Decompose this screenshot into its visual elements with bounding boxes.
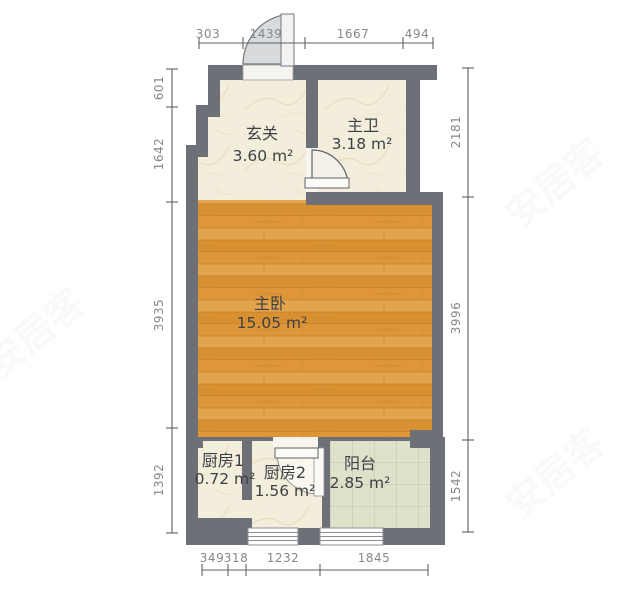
door-threshold xyxy=(243,65,293,80)
wall-segment xyxy=(330,437,410,441)
room-zhuwo-name: 主卧 xyxy=(254,294,286,313)
wall-segment xyxy=(432,192,443,448)
dim-label-left-0: 601 xyxy=(152,76,166,100)
room-xuanguan-name: 玄关 xyxy=(246,124,278,143)
dimension-left xyxy=(166,69,178,533)
room-zhuwei-area: 3.18 m² xyxy=(332,135,393,153)
floorplan-image: 安居客 安居客 安居客 安居客 xyxy=(0,0,631,600)
wall-segment xyxy=(252,437,273,441)
dim-label-top-1: 1439 xyxy=(250,27,283,41)
dim-label-bottom-1: 318 xyxy=(224,551,248,565)
dimension-right xyxy=(462,68,474,532)
room-chufang2-name: 厨房2 xyxy=(264,463,306,482)
room-yangtai-name: 阳台 xyxy=(344,454,376,473)
dim-label-left-1: 1642 xyxy=(152,138,166,171)
room-zhuwei-name: 主卫 xyxy=(347,116,379,135)
window-balcony xyxy=(320,528,383,545)
wall-segment xyxy=(406,65,420,192)
wall-segment xyxy=(186,528,248,545)
room-chufang1-area: 0.72 m² xyxy=(195,470,256,488)
entry-door xyxy=(243,14,294,80)
wall-segment xyxy=(318,437,330,448)
dim-label-bottom-3: 1845 xyxy=(358,551,391,565)
dim-label-bottom-0: 349 xyxy=(200,551,224,565)
room-chufang2-area: 1.56 m² xyxy=(255,482,316,500)
room-zhuwo-area: 15.05 m² xyxy=(237,314,308,332)
wall-segment xyxy=(306,65,318,148)
dim-label-left-3: 1392 xyxy=(152,464,166,497)
door-leaf xyxy=(275,448,318,458)
wall-segment xyxy=(242,437,252,448)
dim-label-top-0: 303 xyxy=(196,27,220,41)
dim-label-left-2: 3935 xyxy=(152,299,166,332)
wall-segment xyxy=(410,430,443,448)
room-xuanguan-area: 3.60 m² xyxy=(233,147,294,165)
door-leaf xyxy=(305,178,349,188)
wall-segment xyxy=(298,528,320,545)
wall-segment xyxy=(383,528,445,545)
dim-label-right-0: 2181 xyxy=(449,116,463,149)
dim-label-right-2: 1542 xyxy=(449,470,463,503)
door-threshold xyxy=(273,437,318,448)
dim-label-top-2: 1667 xyxy=(337,27,370,41)
dimension-bottom xyxy=(202,564,428,576)
window-kitchen xyxy=(248,528,298,545)
wall-segment xyxy=(186,437,203,448)
room-yangtai-area: 2.85 m² xyxy=(330,474,391,492)
floor-plan-svg: 安居客 安居客 安居客 安居客 xyxy=(0,0,631,600)
room-zhuwo-floor xyxy=(198,200,432,437)
dimension-top xyxy=(199,37,433,49)
watermark: 安居客 xyxy=(0,280,93,387)
watermark: 安居客 xyxy=(498,420,614,527)
watermark: 安居客 xyxy=(498,130,614,237)
dim-label-bottom-2: 1232 xyxy=(267,551,300,565)
wall-segment xyxy=(203,437,245,441)
room-chufang1-name: 厨房1 xyxy=(202,451,244,470)
wall-segment xyxy=(306,192,443,205)
door-leaf xyxy=(281,14,294,66)
dim-label-top-3: 494 xyxy=(405,27,429,41)
dim-label-right-1: 3996 xyxy=(449,302,463,335)
wall-segment xyxy=(198,518,252,528)
